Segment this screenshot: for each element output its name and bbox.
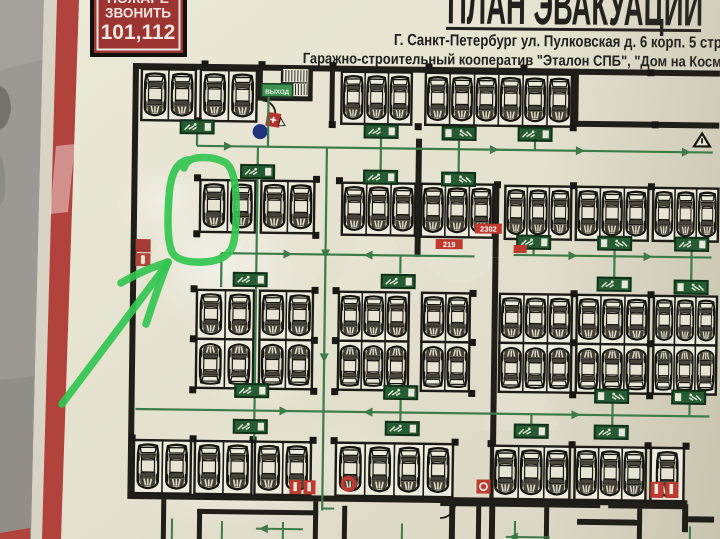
svg-text:219: 219 (443, 240, 456, 249)
svg-text:ВЫХОД: ВЫХОД (265, 89, 290, 96)
svg-text:101,112: 101,112 (101, 21, 176, 44)
svg-text:2302: 2302 (480, 225, 497, 234)
svg-text:ЗВОНИТЬ: ЗВОНИТЬ (105, 6, 171, 21)
